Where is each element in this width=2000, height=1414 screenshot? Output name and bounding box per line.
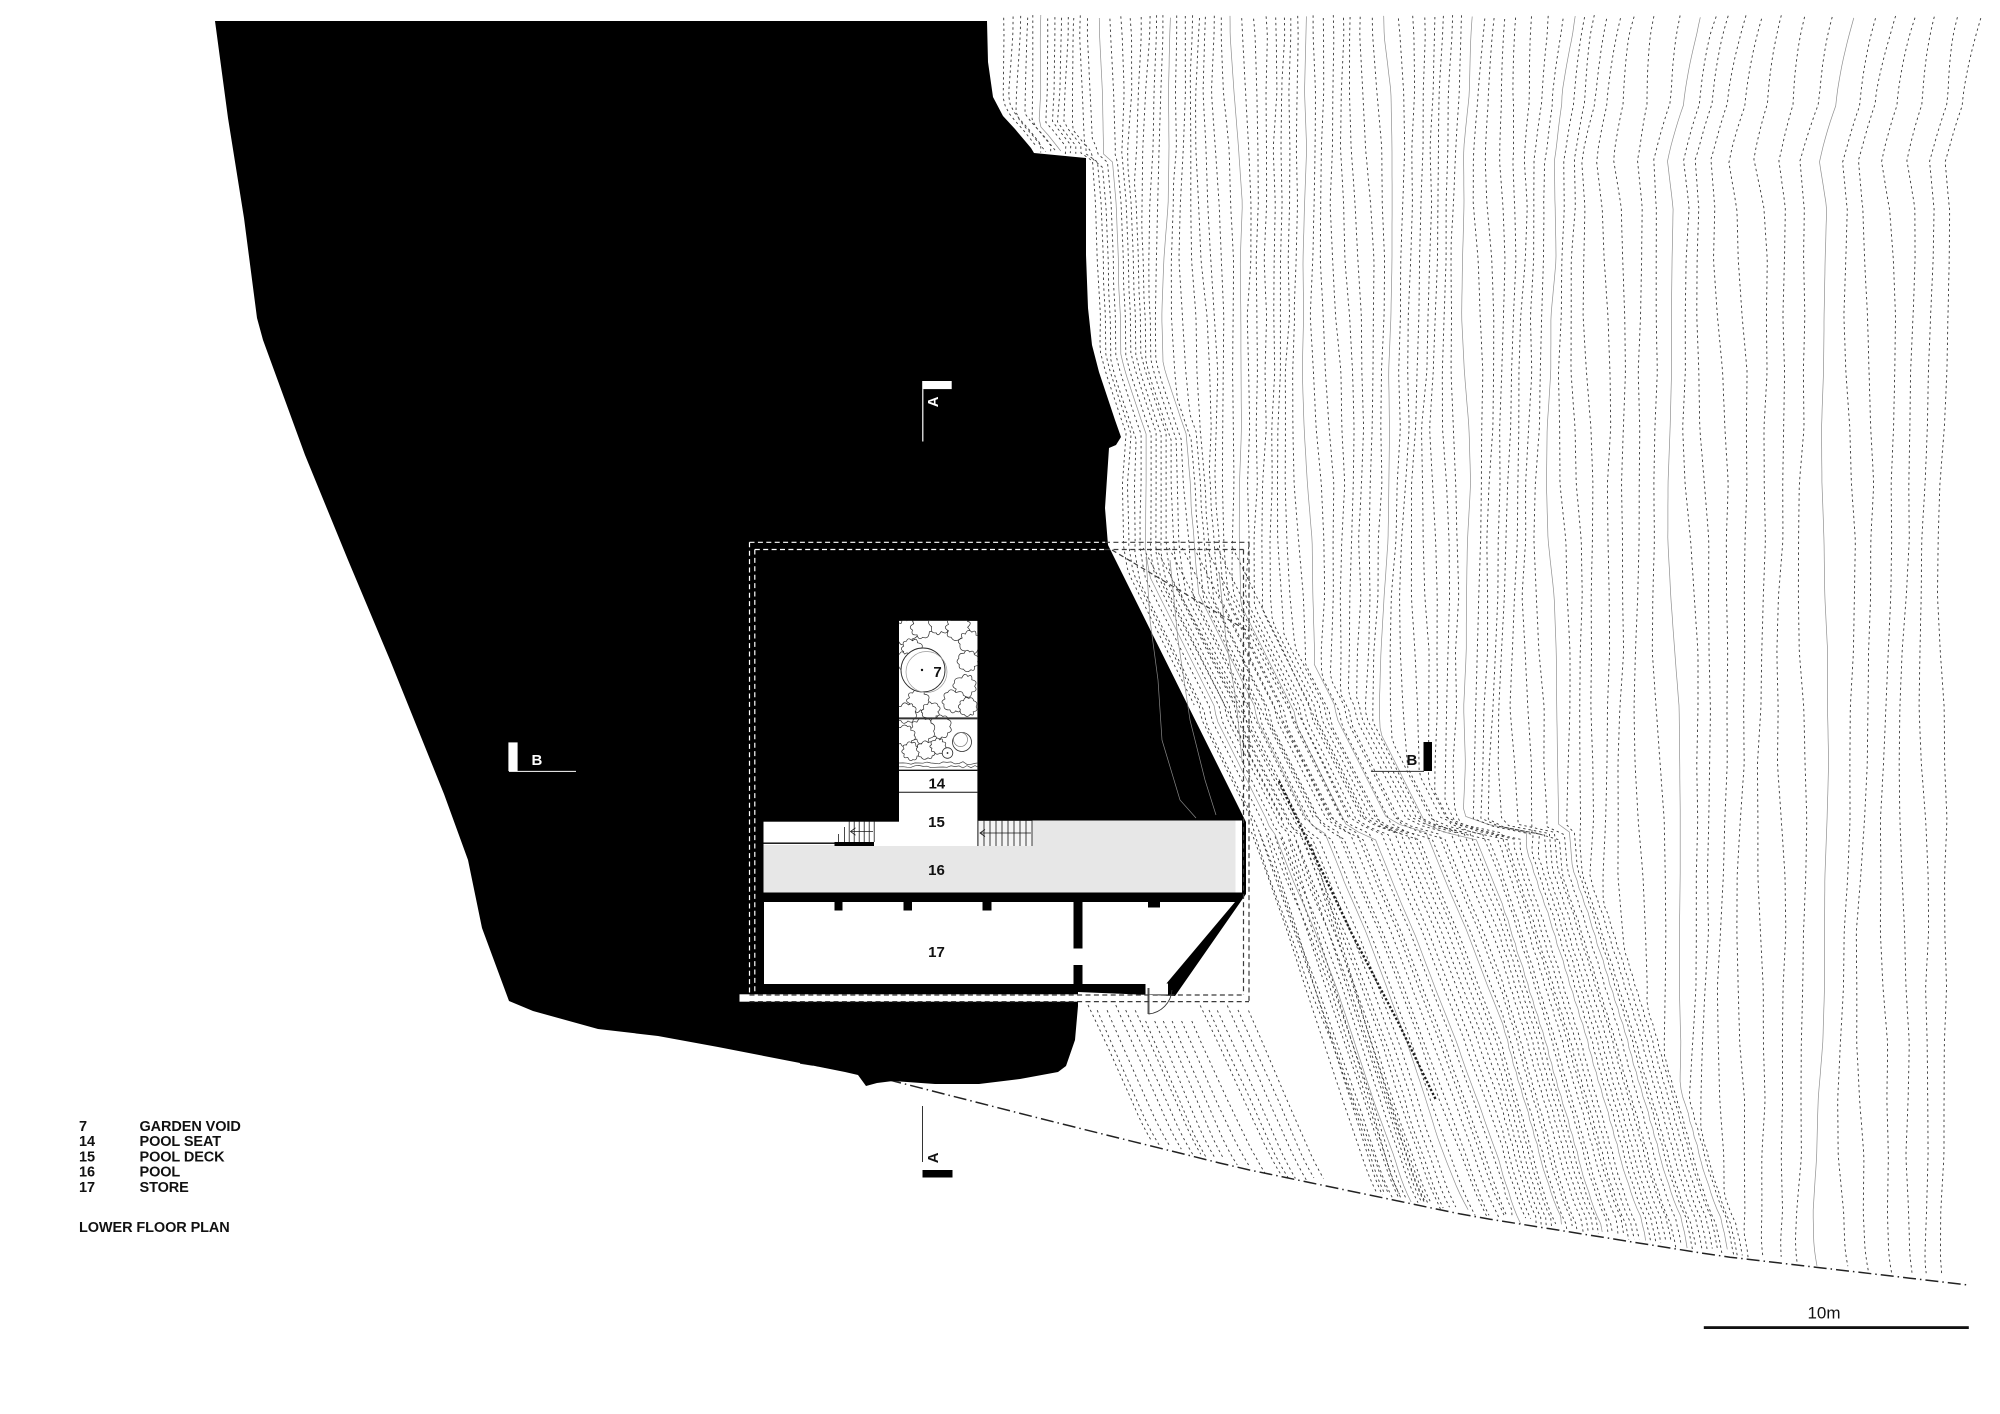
svg-text:7: 7 <box>79 1119 87 1135</box>
svg-text:7: 7 <box>933 664 941 681</box>
svg-text:15: 15 <box>928 814 945 831</box>
svg-text:17: 17 <box>928 944 945 961</box>
svg-text:16: 16 <box>79 1165 95 1181</box>
svg-text:10m: 10m <box>1807 1304 1840 1323</box>
svg-text:A: A <box>925 1152 942 1163</box>
svg-text:14: 14 <box>928 776 945 793</box>
svg-text:14: 14 <box>79 1134 95 1150</box>
svg-text:POOL SEAT: POOL SEAT <box>140 1134 222 1150</box>
svg-text:16: 16 <box>928 862 945 879</box>
svg-text:B: B <box>1407 752 1418 769</box>
svg-text:STORE: STORE <box>140 1180 190 1196</box>
svg-text:GARDEN VOID: GARDEN VOID <box>140 1119 241 1135</box>
svg-text:15: 15 <box>79 1149 95 1165</box>
svg-text:17: 17 <box>79 1180 95 1196</box>
svg-text:A: A <box>925 396 942 407</box>
svg-text:POOL DECK: POOL DECK <box>140 1149 226 1165</box>
svg-text:LOWER FLOOR PLAN: LOWER FLOOR PLAN <box>79 1220 230 1236</box>
svg-text:POOL: POOL <box>140 1165 181 1181</box>
svg-text:B: B <box>532 752 543 769</box>
